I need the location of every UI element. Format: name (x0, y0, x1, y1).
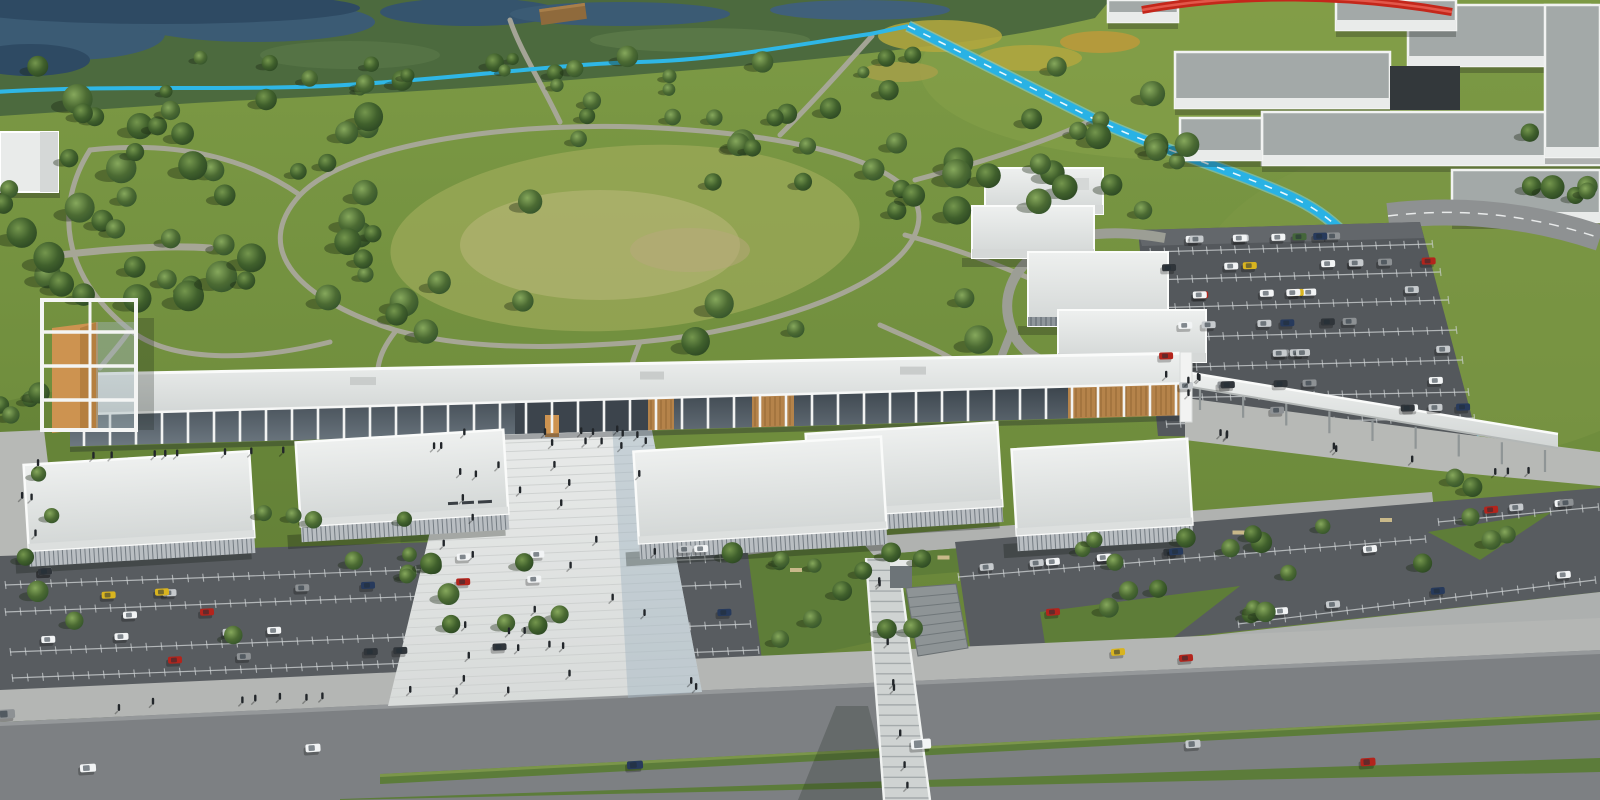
rendering-canvas (0, 0, 1600, 800)
bench (1233, 531, 1245, 535)
pavilion (282, 430, 510, 549)
aerial-rendering (0, 0, 1600, 800)
bench (938, 556, 950, 560)
bench (1380, 518, 1392, 522)
bench (790, 568, 802, 572)
pavilion (619, 437, 887, 567)
